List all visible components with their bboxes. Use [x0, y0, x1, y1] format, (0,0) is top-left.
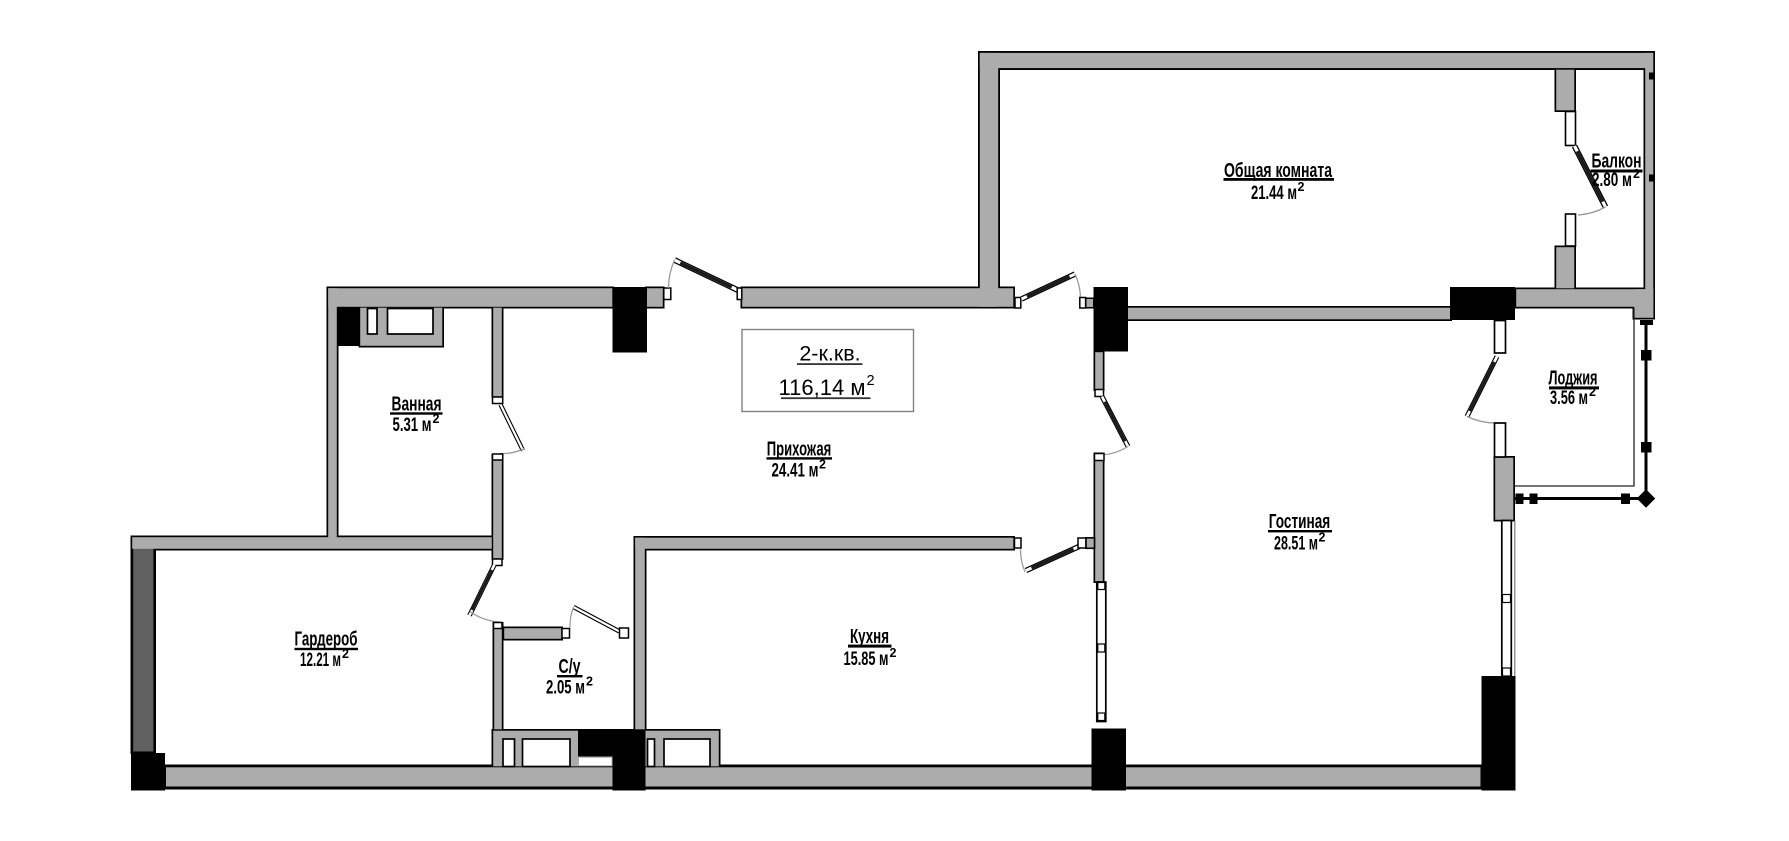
svg-text:28.51 м: 28.51 м: [1274, 534, 1318, 555]
svg-text:2: 2: [1589, 385, 1596, 399]
svg-text:2.80 м: 2.80 м: [1592, 170, 1632, 191]
svg-text:2: 2: [342, 647, 349, 661]
svg-text:2: 2: [867, 373, 875, 389]
svg-text:24.41 м: 24.41 м: [772, 461, 819, 482]
svg-text:2: 2: [586, 675, 593, 689]
svg-text:21.44 м: 21.44 м: [1251, 183, 1297, 204]
svg-text:116,14 м: 116,14 м: [779, 375, 866, 400]
svg-text:2: 2: [1633, 167, 1640, 181]
svg-text:2: 2: [1319, 531, 1326, 545]
svg-text:12.21 м: 12.21 м: [300, 650, 341, 671]
svg-text:2: 2: [1298, 180, 1305, 194]
svg-text:С/у: С/у: [559, 656, 582, 678]
svg-text:15.85 м: 15.85 м: [844, 649, 889, 670]
svg-text:2.05 м: 2.05 м: [546, 678, 585, 699]
svg-text:2-к.кв.: 2-к.кв.: [799, 342, 860, 366]
svg-text:2: 2: [819, 458, 826, 472]
svg-text:5.31 м: 5.31 м: [393, 415, 432, 436]
svg-text:2: 2: [890, 646, 897, 660]
svg-text:2: 2: [433, 412, 440, 426]
svg-text:3.56 м: 3.56 м: [1550, 388, 1588, 409]
